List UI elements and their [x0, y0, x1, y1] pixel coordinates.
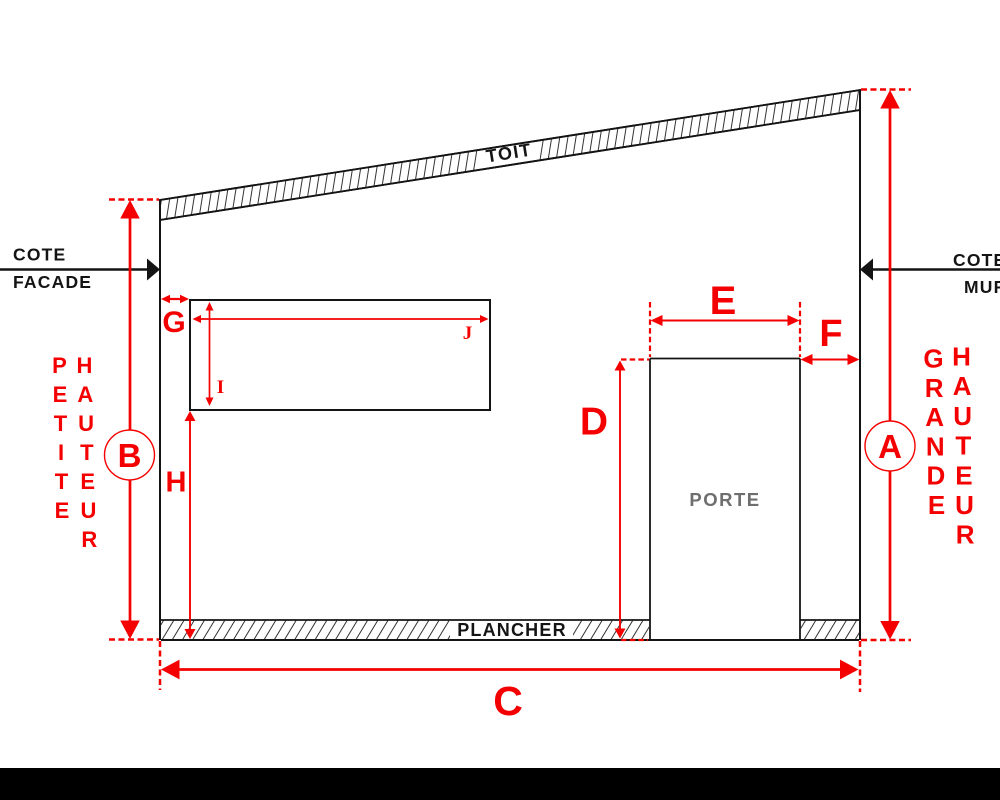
- svg-text:E: E: [53, 382, 68, 407]
- svg-text:D: D: [580, 401, 608, 444]
- svg-text:A: A: [925, 402, 944, 432]
- svg-text:P: P: [52, 353, 67, 378]
- svg-text:T: T: [80, 440, 94, 465]
- svg-text:R: R: [956, 520, 975, 550]
- svg-text:H: H: [77, 353, 93, 378]
- svg-text:U: U: [81, 498, 97, 523]
- svg-text:G: G: [923, 344, 943, 374]
- svg-text:J: J: [463, 323, 473, 344]
- svg-text:H: H: [952, 342, 971, 372]
- svg-text:PORTE: PORTE: [689, 489, 760, 510]
- svg-text:N: N: [926, 431, 945, 461]
- svg-text:T: T: [54, 411, 68, 436]
- svg-text:A: A: [77, 382, 93, 407]
- svg-text:E: E: [955, 460, 972, 490]
- svg-text:E: E: [710, 279, 737, 323]
- svg-text:U: U: [955, 490, 974, 520]
- svg-text:MUR: MUR: [964, 277, 1000, 297]
- svg-text:R: R: [81, 527, 97, 552]
- svg-text:I: I: [217, 377, 224, 398]
- svg-text:B: B: [118, 437, 142, 474]
- svg-text:A: A: [878, 428, 902, 465]
- svg-text:A: A: [953, 371, 972, 401]
- svg-text:T: T: [55, 469, 69, 494]
- svg-text:D: D: [927, 461, 946, 491]
- svg-text:I: I: [58, 440, 64, 465]
- svg-text:R: R: [925, 373, 944, 403]
- svg-text:COTE: COTE: [953, 250, 1000, 270]
- svg-text:T: T: [955, 431, 971, 461]
- svg-text:G: G: [162, 306, 185, 339]
- svg-text:E: E: [928, 490, 945, 520]
- svg-text:FACADE: FACADE: [13, 272, 92, 292]
- svg-text:U: U: [78, 411, 94, 436]
- svg-text:H: H: [166, 467, 187, 499]
- svg-text:F: F: [819, 313, 842, 355]
- svg-text:E: E: [80, 469, 95, 494]
- svg-text:COTE: COTE: [13, 245, 66, 265]
- svg-text:C: C: [493, 678, 523, 724]
- svg-text:E: E: [55, 498, 70, 523]
- svg-text:PLANCHER: PLANCHER: [457, 620, 567, 640]
- svg-text:U: U: [953, 401, 972, 431]
